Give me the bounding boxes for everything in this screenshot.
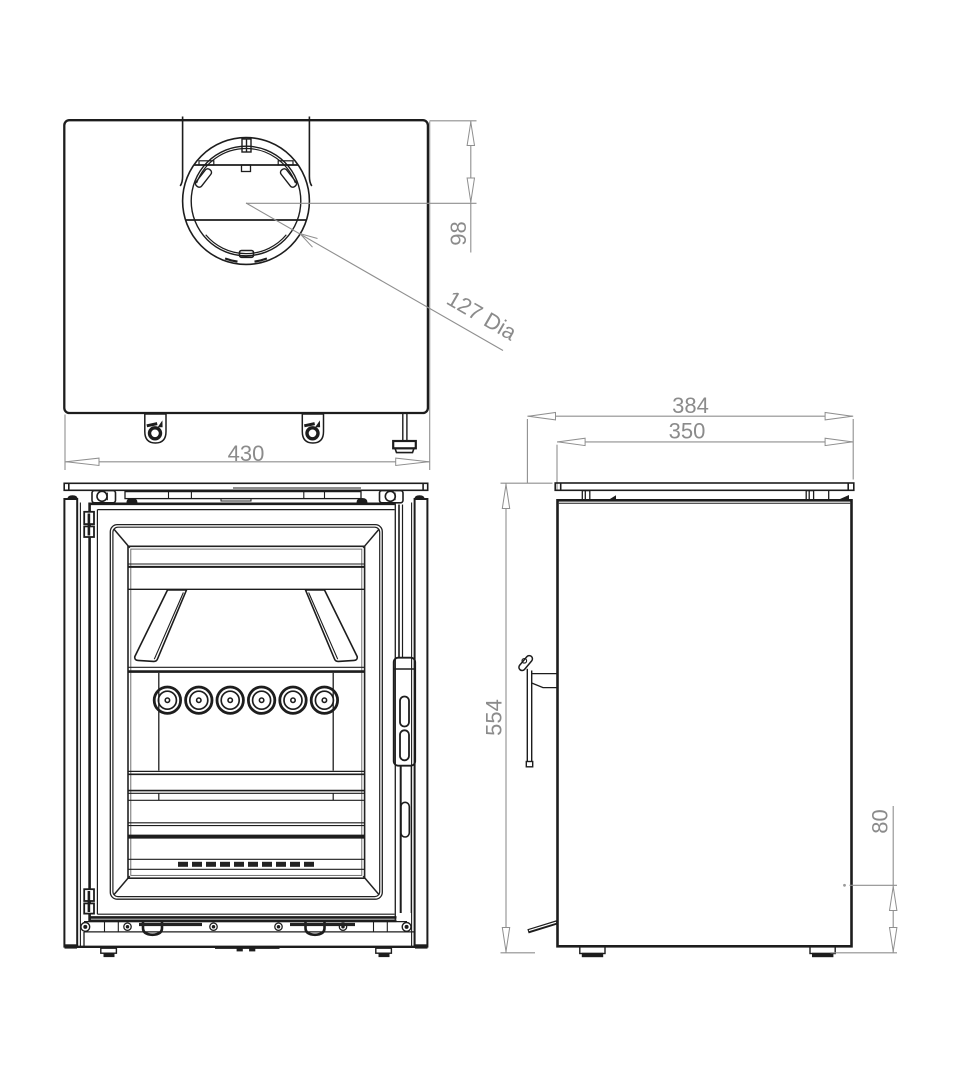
svg-text:80: 80 bbox=[868, 809, 893, 833]
svg-text:350: 350 bbox=[669, 419, 706, 444]
svg-text:384: 384 bbox=[672, 393, 709, 418]
svg-text:554: 554 bbox=[482, 699, 507, 736]
svg-text:98: 98 bbox=[446, 221, 471, 245]
svg-text:430: 430 bbox=[228, 441, 265, 466]
